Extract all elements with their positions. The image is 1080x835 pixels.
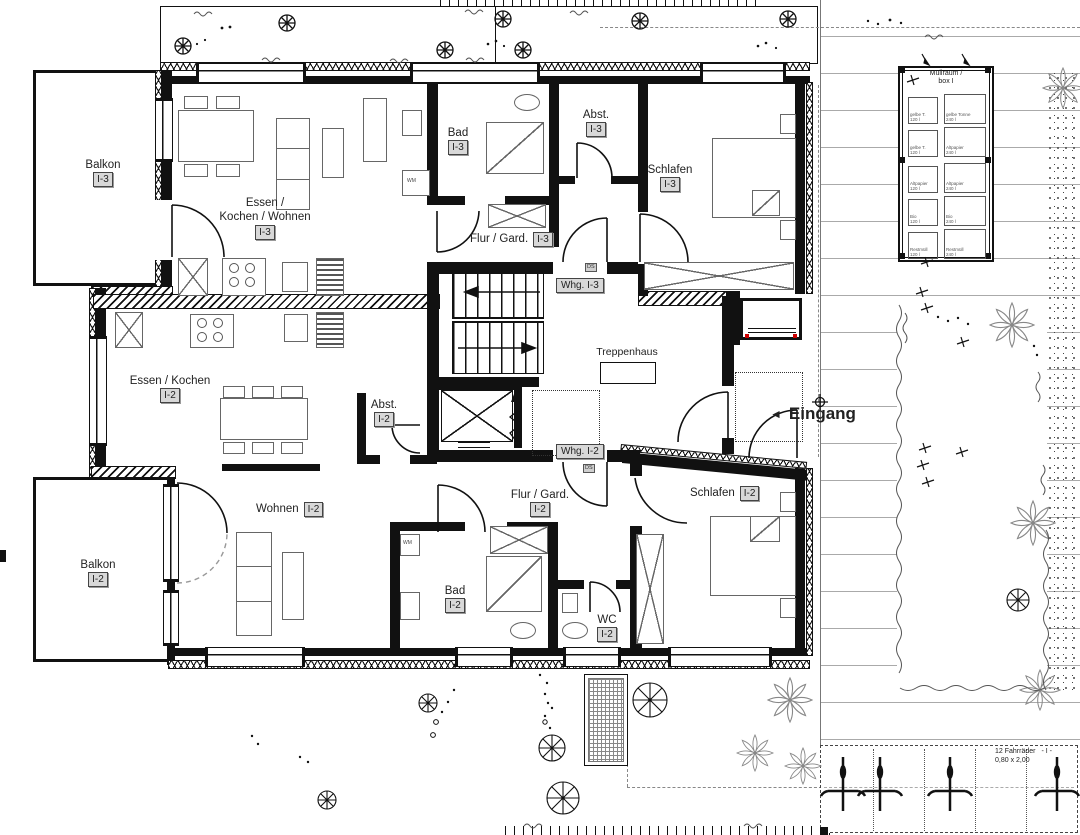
door-marker-tag: DS	[585, 263, 597, 272]
coffee-table	[282, 552, 304, 620]
kitchen-sink	[284, 314, 308, 342]
lawn	[897, 302, 1047, 690]
unit-badge: I-2	[530, 502, 550, 517]
dishwasher	[316, 258, 344, 296]
toilet	[514, 94, 540, 111]
nightstand	[780, 220, 796, 240]
room-label-balkon-i3: Balkon I-3	[63, 158, 143, 187]
chair	[184, 164, 208, 177]
stairs-flight-lower	[452, 322, 544, 374]
room-label-flur-gard-i3: Flur / Gard. I-3	[470, 232, 553, 247]
wardrobe	[636, 534, 664, 644]
room-label-abst-i2: Abst. I-2	[360, 398, 408, 427]
dining-table	[220, 398, 308, 440]
bike-stall-divider	[975, 749, 976, 831]
washbasin	[562, 593, 578, 613]
waste-bin: gelbe T.120 l	[908, 130, 938, 157]
room-label-bad-i2: Bad I-2	[430, 584, 480, 613]
bike-parking-label: 12 Fahrräder- I - 0,80 x 2,00	[995, 747, 1052, 765]
chair	[216, 164, 240, 177]
door-opening	[638, 212, 648, 264]
unit-badge: I-2	[445, 598, 465, 613]
wall-stub-left-edge	[0, 550, 6, 562]
stove	[222, 258, 266, 296]
frame-post	[899, 253, 905, 259]
entrance-boundary-dash	[818, 85, 819, 457]
waste-bin: Bio120 l	[908, 199, 938, 226]
door-opening	[380, 455, 410, 464]
window	[455, 647, 513, 667]
bed-cover-fold	[752, 190, 780, 216]
fence-ticks-top	[440, 0, 760, 7]
room-label-flur-gard-i2: Flur / Gard. I-2	[495, 488, 585, 517]
nightstand	[780, 492, 796, 512]
shower	[486, 556, 542, 612]
room-label-treppenhaus: Treppenhaus	[580, 346, 674, 359]
closet	[490, 526, 548, 554]
chair	[252, 386, 274, 398]
bike-marker: - I -	[1041, 747, 1052, 756]
bed-cover-fold	[750, 516, 780, 542]
window	[163, 590, 179, 646]
kitchen-cabinet	[115, 312, 143, 348]
room-label-abst-i3: Abst. I-3	[570, 108, 622, 137]
fence-ticks-bottom	[505, 826, 835, 835]
waste-bin: Altpapier240 l	[944, 163, 986, 193]
muellraum-title-line2: box I	[904, 78, 988, 86]
entrance-text: Eingang	[789, 404, 856, 424]
room-name: Bad	[430, 584, 480, 598]
room-name: Treppenhaus	[580, 346, 674, 359]
entrance-label: ◄ Eingang	[770, 404, 856, 424]
stairs-flight-upper	[452, 266, 544, 318]
sideboard	[222, 464, 320, 471]
apartment-tag-whg-i2: Whg. I-2	[556, 444, 604, 459]
frame-post	[899, 157, 905, 163]
muellraum-title-line1: Müllraum /	[904, 70, 988, 78]
washing-machine-label: WM	[403, 540, 412, 546]
unit-badge: I-3	[93, 172, 113, 187]
unit-badge: I-2	[160, 388, 180, 403]
room-label-wohnen-i2: Wohnen I-2	[256, 502, 323, 517]
terrace-dash-h	[627, 787, 822, 788]
unit-badge: I-2	[88, 572, 108, 587]
chair	[281, 442, 303, 454]
door-opening	[575, 176, 611, 184]
closet	[488, 204, 546, 228]
room-label-schlafen-i3: Schlafen I-3	[630, 163, 710, 192]
room-name: Schlafen	[630, 163, 710, 177]
window	[700, 63, 786, 83]
window	[668, 647, 772, 667]
wall-insulation	[806, 468, 813, 656]
window	[196, 63, 306, 83]
wall	[795, 468, 805, 656]
door-opening	[155, 200, 173, 260]
window	[205, 647, 305, 667]
door-arc-dashed-icon	[177, 533, 227, 583]
entrance-arrow-icon: ◄	[770, 407, 782, 421]
nightstand	[780, 598, 796, 618]
wall-elevator-shaft	[432, 382, 522, 390]
waste-bin: gelbe Tonne240 l	[944, 94, 986, 124]
room-label-essen-kochen-wohnen-i3: Essen / Kochen / Wohnen I-3	[190, 196, 340, 240]
stair-hall-rect	[600, 362, 656, 384]
bike-area-corner	[820, 827, 828, 835]
room-name: Bad	[432, 126, 484, 140]
waste-bin: Altpapier120 l	[908, 166, 938, 193]
dining-table	[178, 110, 254, 162]
wall-core	[427, 262, 439, 462]
grate-grid	[588, 678, 624, 762]
chair	[223, 442, 245, 454]
kitchen-sink	[282, 262, 308, 292]
room-name: Schlafen	[690, 486, 735, 500]
apartment-tag-whg-i3: Whg. I-3	[556, 278, 604, 293]
unit-badge: I-2	[597, 627, 617, 642]
scatter-circles	[431, 720, 548, 738]
sliding-door	[163, 484, 179, 582]
room-name: Abst.	[360, 398, 408, 412]
window	[155, 98, 173, 162]
room-name-line1: Essen /	[190, 196, 340, 210]
bike-stall-size: 0,80 x 2,00	[995, 756, 1052, 765]
muellraum-title: Müllraum / box I	[904, 70, 988, 87]
window	[89, 336, 107, 446]
door-marker-tag: DS	[583, 464, 595, 473]
waste-bin: gelbe T.120 l	[908, 97, 938, 124]
unit-badge: I-2	[374, 412, 394, 427]
unit-badge: I-3	[533, 232, 553, 247]
wall	[390, 522, 400, 648]
washbasin	[400, 592, 420, 620]
coffee-table	[322, 128, 344, 178]
room-name: Balkon	[58, 558, 138, 572]
chair	[281, 386, 303, 398]
unit-badge: I-3	[586, 122, 606, 137]
elevator-door	[458, 442, 490, 448]
washing-machine-label: WM	[407, 178, 416, 184]
unit-badge: I-2	[740, 486, 760, 501]
drainage-grate	[584, 674, 628, 766]
waste-bin: Restmüll240 l	[944, 229, 986, 259]
room-label-schlafen-i2: Schlafen I-2	[690, 486, 759, 501]
room-label-bad-i3: Bad I-3	[432, 126, 484, 155]
bike-stall-divider	[873, 749, 874, 831]
chair	[223, 386, 245, 398]
chair	[184, 96, 208, 109]
chair	[216, 96, 240, 109]
chair	[252, 442, 274, 454]
window	[563, 647, 621, 667]
room-label-balkon-i2: Balkon I-2	[58, 558, 138, 587]
room-label-essen-kochen-i2: Essen / Kochen I-2	[115, 374, 225, 403]
wall-insulation	[806, 82, 813, 294]
bike-count: 12 Fahrräder	[995, 747, 1035, 756]
waste-bin: Altpapier240 l	[944, 127, 986, 157]
sofa	[236, 532, 272, 636]
room-name: Balkon	[63, 158, 143, 172]
room-name: Abst.	[570, 108, 622, 122]
door-opening	[553, 262, 607, 274]
planting-strip-divider	[495, 6, 496, 64]
toilet	[510, 622, 536, 639]
floor-plan: Müllraum / box I gelbe T.120 l gelbe Ton…	[0, 0, 1080, 835]
elevator	[441, 390, 513, 442]
waste-bin: Bio240 l	[944, 196, 986, 226]
room-label-wc-i2: WC I-2	[582, 613, 632, 642]
room-name: WC	[582, 613, 632, 627]
bike-stall-divider	[924, 749, 925, 831]
door-opening	[630, 476, 642, 526]
bike-area-centerline	[824, 787, 1074, 788]
wall-central	[93, 294, 440, 309]
washbasin	[402, 110, 422, 136]
room-name: Flur / Gard.	[495, 488, 585, 502]
room-name: Wohnen	[256, 502, 299, 516]
room-name: Flur / Gard.	[470, 232, 528, 246]
nightstand	[780, 114, 796, 134]
wall	[549, 82, 559, 247]
wall	[795, 82, 805, 294]
planting-strip	[160, 6, 818, 64]
marker-red	[745, 334, 749, 338]
waste-bin: Restmüll120 l	[908, 232, 938, 259]
stove	[190, 314, 234, 348]
gravel-strip	[1046, 73, 1080, 695]
dishwasher	[316, 312, 344, 348]
wall-elevator-shaft	[514, 382, 522, 448]
unit-badge: I-3	[255, 225, 275, 240]
unit-badge: I-2	[304, 502, 324, 517]
unit-badge: I-3	[660, 177, 680, 192]
cabinet	[363, 98, 387, 162]
door-opening	[584, 580, 616, 589]
kitchen-cabinet	[178, 258, 208, 296]
room-name-line2: Kochen / Wohnen	[190, 210, 340, 224]
boundary-dash-top	[600, 27, 1080, 28]
room-name: Essen / Kochen	[115, 374, 225, 388]
door-opening	[722, 386, 734, 438]
unit-badge: I-3	[448, 140, 468, 155]
entrance-sill	[748, 328, 796, 333]
wall-central	[638, 291, 730, 306]
shower	[486, 122, 544, 174]
wardrobe	[644, 262, 794, 290]
window	[410, 63, 540, 83]
marker-red	[793, 334, 797, 338]
